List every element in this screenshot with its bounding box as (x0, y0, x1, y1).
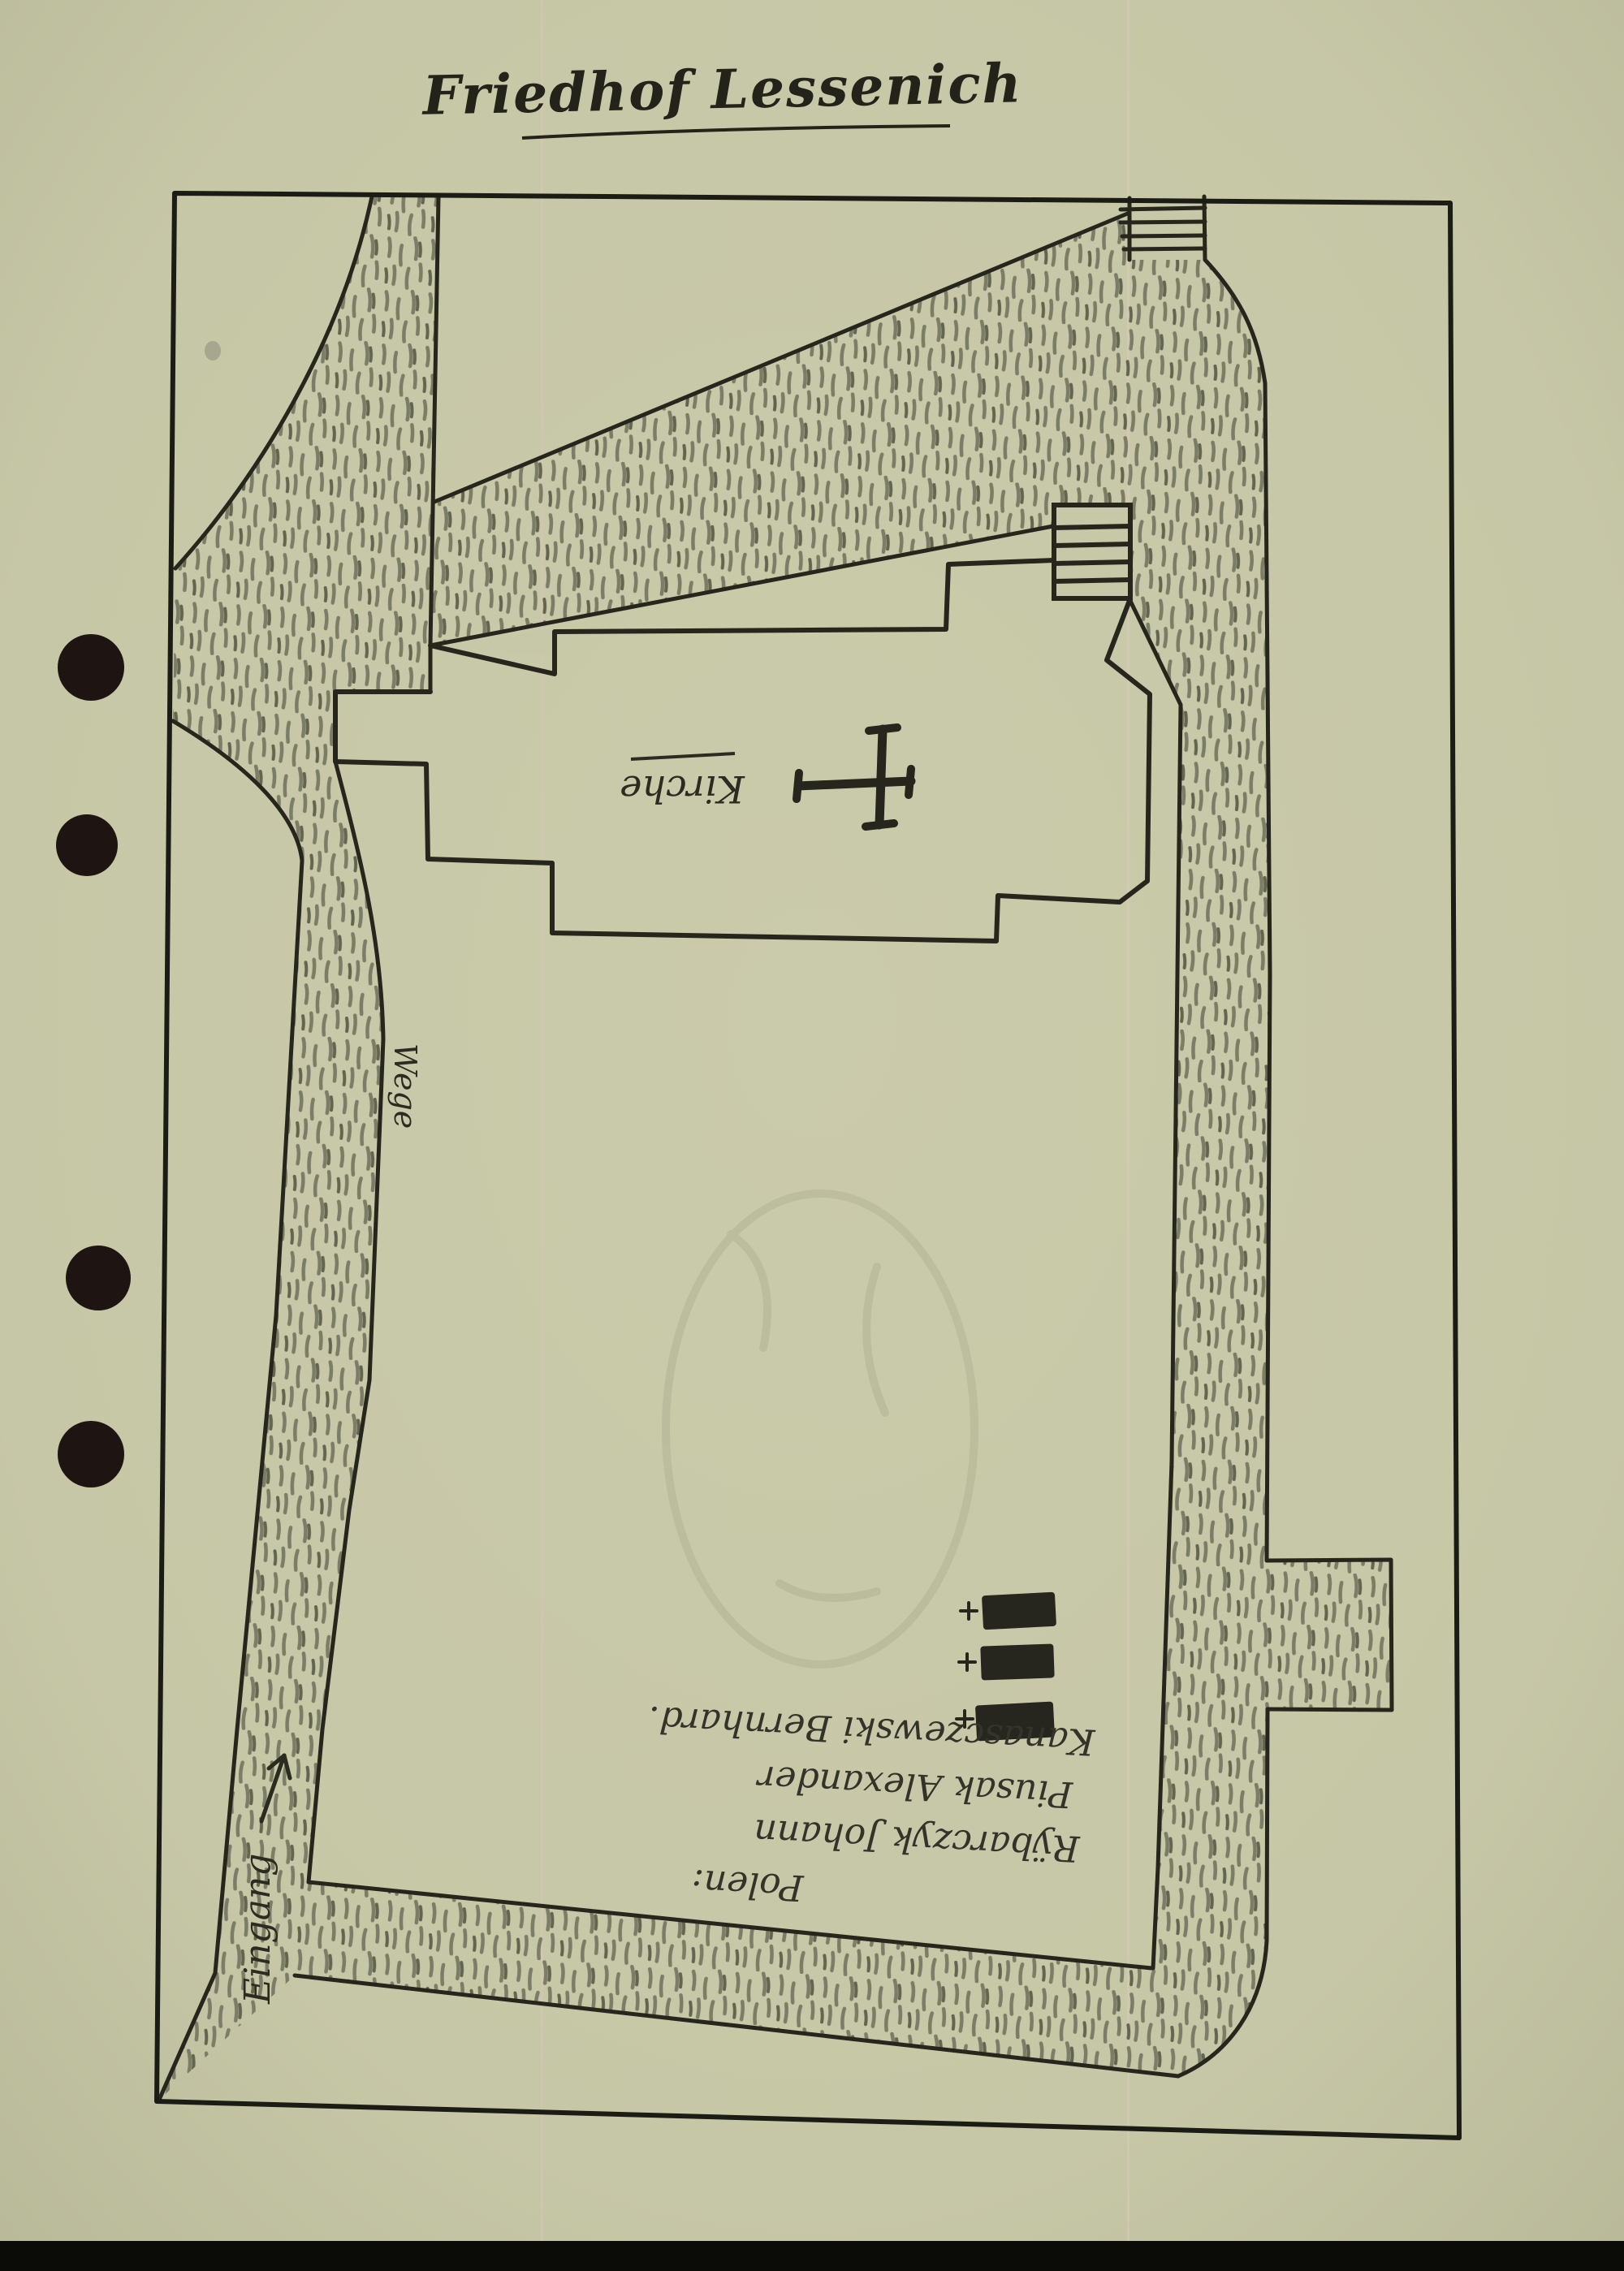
hole-punch (66, 1246, 131, 1310)
scan-edge-band (0, 2241, 1624, 2271)
hole-punch (58, 634, 124, 701)
scanned-cemetery-map-page: Kirche Wege Eingang (0, 0, 1624, 2271)
church-label-text: Kirche (620, 767, 745, 811)
page-title: Friedhof Lessenich (421, 51, 1023, 127)
map-canvas: Kirche Wege Eingang (0, 0, 1624, 2271)
entrance-label-text: Eingang (237, 1854, 279, 2005)
paper-smudge (205, 341, 221, 361)
hole-punch (58, 1421, 124, 1487)
stairs-church (1054, 505, 1130, 598)
path-label-text: Wege (387, 1043, 423, 1129)
hole-punch (56, 814, 118, 876)
memo-heading: Polen: (691, 1861, 806, 1908)
stairs-top-right (1121, 196, 1205, 260)
